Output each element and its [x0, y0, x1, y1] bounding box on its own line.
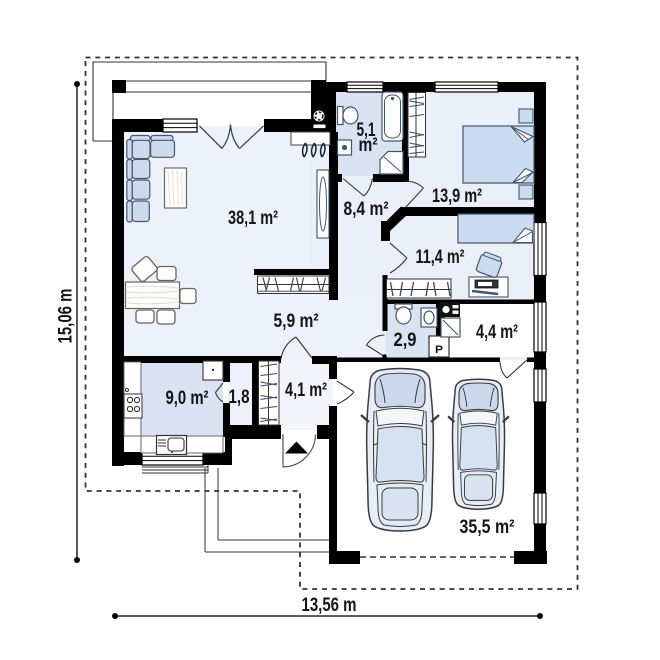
svg-text:38,1 m²: 38,1 m²: [228, 207, 278, 229]
svg-text:P: P: [435, 344, 443, 356]
svg-text:9,0 m²: 9,0 m²: [166, 387, 209, 409]
svg-text:2,9: 2,9: [394, 329, 417, 351]
svg-text:m²: m²: [359, 134, 378, 156]
svg-text:35,5 m²: 35,5 m²: [460, 516, 515, 538]
svg-text:5,9 m²: 5,9 m²: [274, 310, 319, 332]
svg-text:15,06 m: 15,06 m: [55, 289, 77, 344]
svg-text:13,56 m: 13,56 m: [302, 594, 357, 616]
svg-text:4,4 m²: 4,4 m²: [476, 321, 518, 343]
svg-text:4,1 m²: 4,1 m²: [285, 379, 327, 401]
svg-text:8,4 m²: 8,4 m²: [344, 198, 389, 220]
svg-text:11,4 m²: 11,4 m²: [416, 246, 465, 268]
svg-text:1,8: 1,8: [229, 386, 250, 408]
svg-text:13,9 m²: 13,9 m²: [432, 185, 482, 207]
